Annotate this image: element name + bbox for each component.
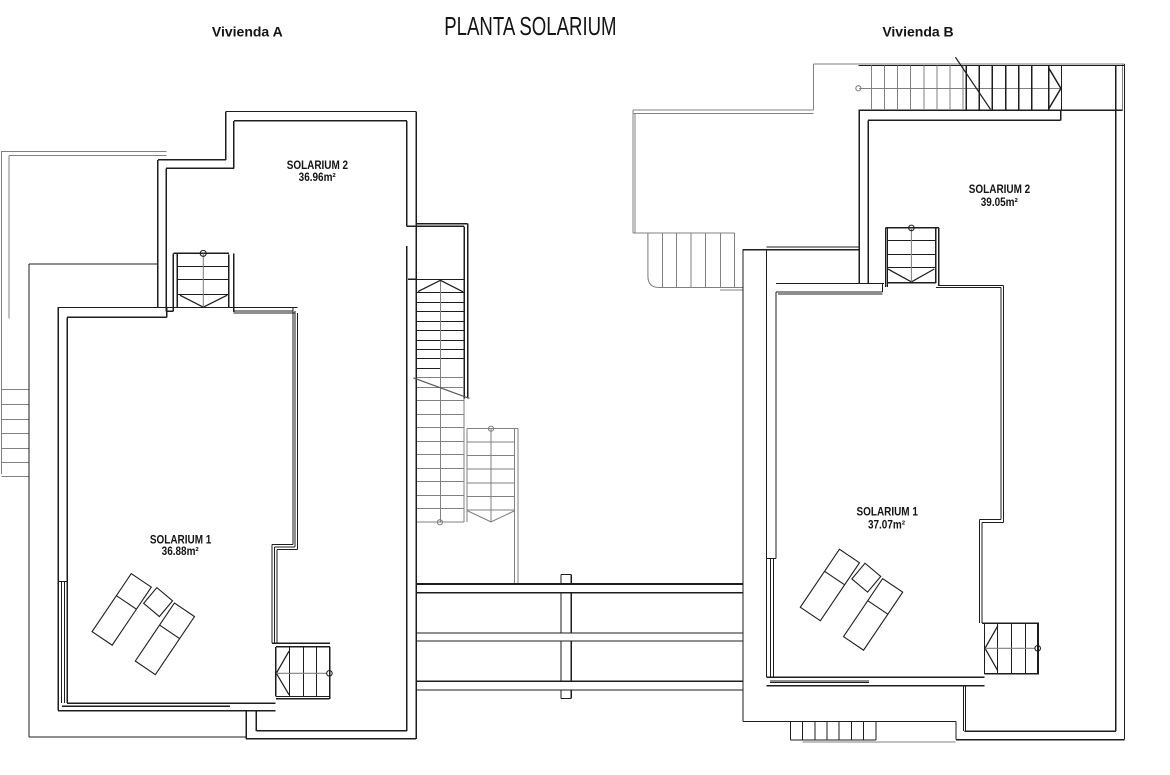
svg-text:36.88m²: 36.88m² <box>162 545 199 558</box>
svg-text:36.96m²: 36.96m² <box>299 171 336 184</box>
svg-text:PLANTA SOLARIUM: PLANTA SOLARIUM <box>444 12 616 41</box>
svg-text:39.05m²: 39.05m² <box>981 196 1018 209</box>
svg-text:SOLARIUM 2: SOLARIUM 2 <box>287 159 348 172</box>
svg-text:Vivienda A: Vivienda A <box>212 23 283 39</box>
svg-text:SOLARIUM 2: SOLARIUM 2 <box>969 184 1030 197</box>
svg-text:Vivienda B: Vivienda B <box>882 23 953 39</box>
svg-text:SOLARIUM 1: SOLARIUM 1 <box>856 506 917 519</box>
svg-text:37.07m²: 37.07m² <box>868 519 905 532</box>
